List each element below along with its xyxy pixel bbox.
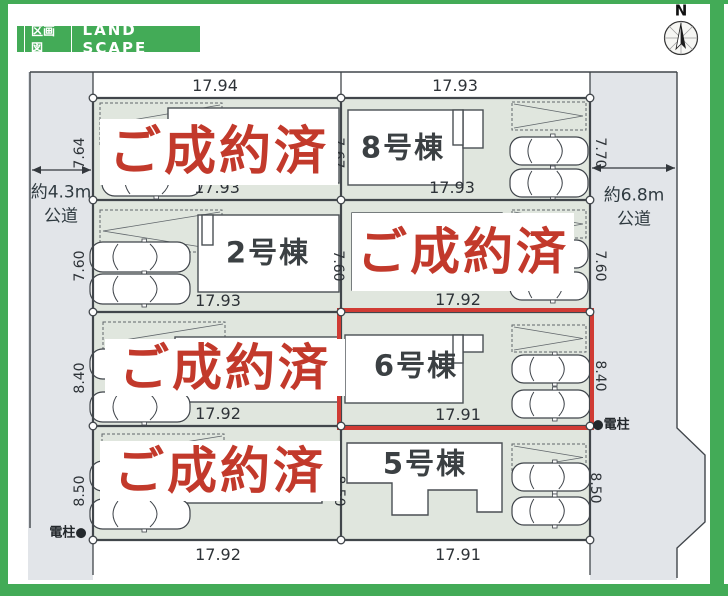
right-road-width-label: 約6.8m xyxy=(604,188,665,205)
boundary-vertex xyxy=(586,536,594,544)
dim-r2-bottom-left: 17.93 xyxy=(195,293,241,309)
left-road-width-label: 約4.3m xyxy=(31,185,92,202)
sold-stamp-row4-left: ご成約済 xyxy=(100,441,340,501)
boundary-vertex xyxy=(586,196,594,204)
boundary-vertex xyxy=(337,536,345,544)
boundary-vertex xyxy=(89,422,97,430)
dim-r4-left: 8.50 xyxy=(73,475,87,506)
dim-r3-left: 8.40 xyxy=(73,362,87,393)
car-icon xyxy=(512,494,590,528)
dim-r2-right: 7.60 xyxy=(593,250,607,281)
site-plan-page: 区画図 LAND SCAPE N 17.94 17.93 17.93 17.93… xyxy=(0,0,728,600)
dim-r1-left: 7.64 xyxy=(73,137,87,168)
building-6-annex xyxy=(463,335,483,352)
lot-label-2: 2号棟 xyxy=(226,239,310,268)
boundary-vertex xyxy=(89,536,97,544)
boundary-vertex xyxy=(337,94,345,102)
car-icon xyxy=(90,271,190,307)
dim-r1-bottom-right: 17.93 xyxy=(429,180,475,196)
dim-r1-right: 7.70 xyxy=(593,137,607,168)
car-icon xyxy=(90,496,190,532)
sold-stamp-row1-left: ご成約済 xyxy=(100,119,338,185)
dim-r4-right: 8.50 xyxy=(588,472,602,503)
page-title: LAND SCAPE xyxy=(83,21,200,57)
dim-r2-center: 7.60 xyxy=(331,250,345,281)
site-plan-svg xyxy=(0,0,728,600)
car-icon xyxy=(510,134,588,168)
car-icon xyxy=(510,166,588,200)
dim-r2-bottom-right: 17.92 xyxy=(435,292,481,308)
boundary-vertex xyxy=(337,422,345,430)
header-bar: 区画図 LAND SCAPE xyxy=(17,26,200,52)
left-road-type-label: 公道 xyxy=(44,209,78,226)
boundary-vertex xyxy=(89,308,97,316)
dim-bottom-left: 17.92 xyxy=(195,547,241,563)
compass-icon xyxy=(665,22,698,55)
dim-r2-left: 7.60 xyxy=(73,250,87,281)
car-icon xyxy=(512,460,590,494)
boundary-vertex xyxy=(337,196,345,204)
boundary-vertex xyxy=(337,308,345,316)
right-road-type-label: 公道 xyxy=(617,212,651,229)
boundary-vertex xyxy=(586,94,594,102)
car-icon xyxy=(512,387,590,421)
building-2-porch xyxy=(202,215,213,245)
lot-label-6: 6号棟 xyxy=(374,352,458,381)
dim-r3-bottom-left: 17.92 xyxy=(195,406,241,422)
utility-pole-label-bottom-left: 電柱● xyxy=(49,527,86,540)
building-8-annex xyxy=(463,110,483,148)
sold-stamp-row2-right: ご成約済 xyxy=(352,213,574,291)
dim-r3-right: 8.40 xyxy=(593,360,607,391)
compass-north-label: N xyxy=(675,4,688,19)
dim-r3-bottom-right: 17.91 xyxy=(435,407,481,423)
boundary-vertex xyxy=(89,94,97,102)
lot-label-8: 8号棟 xyxy=(361,134,445,163)
boundary-vertex xyxy=(586,308,594,316)
dim-top-right: 17.93 xyxy=(432,78,478,94)
car-icon xyxy=(512,352,590,386)
dim-bottom-right: 17.91 xyxy=(435,547,481,563)
sold-stamp-row3-left: ご成約済 xyxy=(105,339,345,396)
car-icon xyxy=(90,239,190,275)
header-tag: 区画図 xyxy=(24,20,72,58)
building-8-porch xyxy=(453,110,463,145)
utility-pole-label-right: ●電柱 xyxy=(592,419,629,432)
dim-top-left: 17.94 xyxy=(192,78,238,94)
lot-label-5: 5号棟 xyxy=(383,450,467,479)
